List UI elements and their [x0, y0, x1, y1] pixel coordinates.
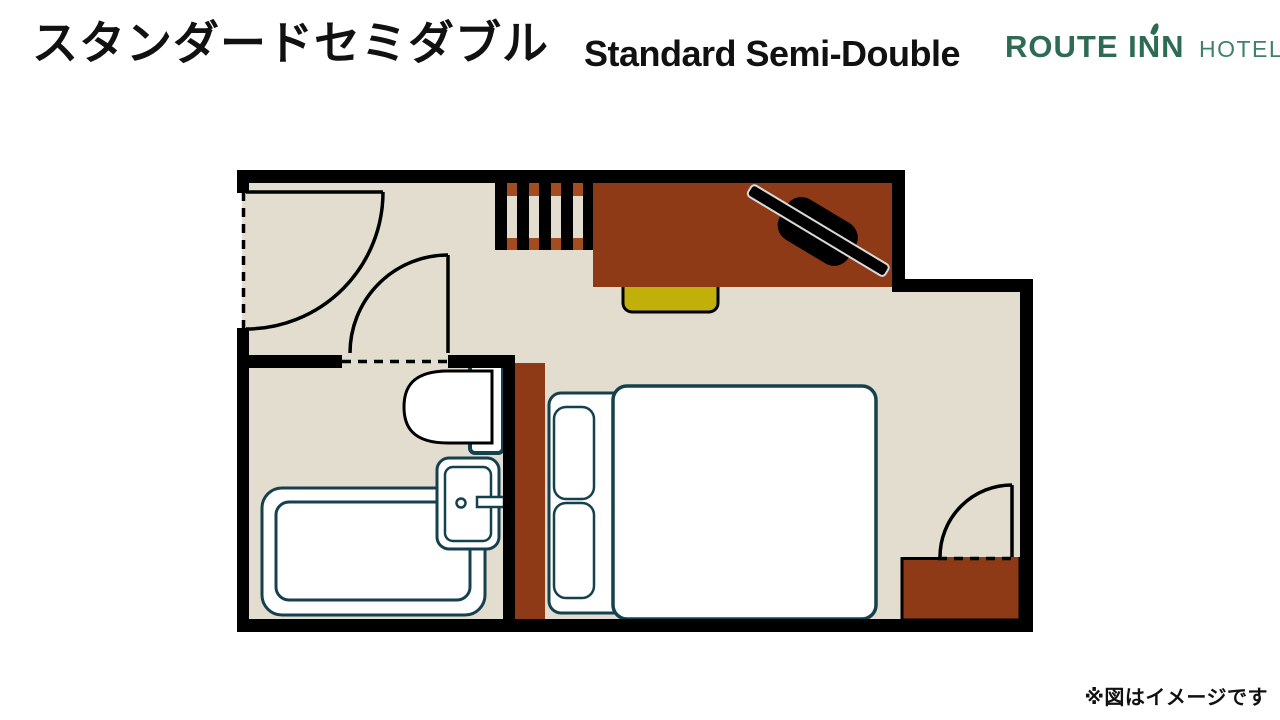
cabinet	[902, 557, 1020, 620]
faucet-spout	[477, 497, 504, 507]
wall-bathroom-partition	[503, 355, 515, 632]
wall-bathroom-a	[237, 355, 342, 368]
wardrobe-panel	[515, 363, 545, 620]
disclaimer-note: ※図はイメージです	[1084, 681, 1268, 710]
wall-top	[237, 170, 905, 183]
semi-double-bed	[549, 386, 876, 619]
wall-right	[1020, 279, 1033, 632]
wall-notch-vertical	[892, 170, 905, 292]
luggage-rack-slat	[517, 176, 529, 250]
luggage-rack-slat	[495, 176, 507, 250]
wall-left-stub	[237, 170, 249, 193]
cabinet-body	[902, 557, 1020, 620]
wall-bottom	[237, 619, 1033, 632]
wall-left	[237, 328, 249, 632]
page: スタンダードセミダブル Standard Semi-Double ROUTE I…	[0, 0, 1280, 720]
luggage-rack-slat	[583, 176, 594, 250]
pillow-bottom	[554, 503, 594, 598]
toilet-bowl	[404, 371, 492, 443]
faucet-knob	[457, 499, 466, 508]
wall-notch-horizontal	[892, 279, 1033, 292]
pillow-top	[554, 407, 594, 499]
mattress	[613, 386, 876, 619]
luggage-rack-slat	[561, 176, 573, 250]
washbasin	[437, 458, 504, 549]
luggage-rack-slat	[539, 176, 551, 250]
floorplan-diagram	[0, 0, 1280, 720]
